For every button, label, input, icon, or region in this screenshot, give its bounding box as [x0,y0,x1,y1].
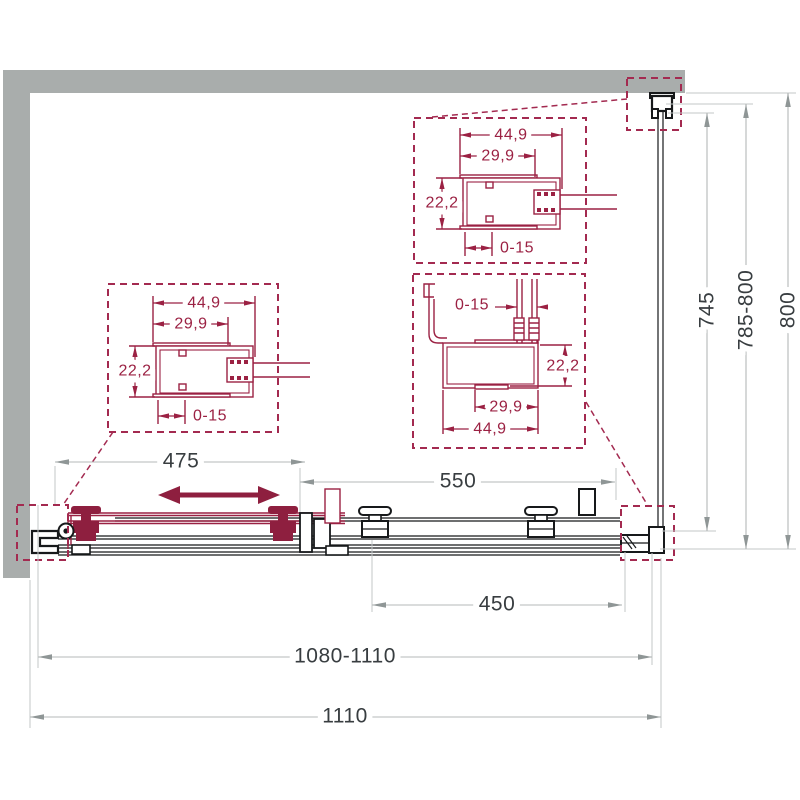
roller-black-left [359,507,391,537]
dim-inner-width: 29,9 [489,399,522,416]
technical-drawing: 44,9 29,9 22,2 0-15 [0,0,800,800]
dim-fixed-panel-label: 550 [440,470,477,493]
fixed-glass-panel-side [658,108,663,530]
roller-black-right [525,507,557,537]
wall-top [3,70,685,93]
technical-drawing-page: 44,9 29,9 22,2 0-15 [0,0,800,800]
dim-depth: 22,2 [546,358,579,375]
plan-dimensions: 475 550 450 1080-1110 1110 [30,450,661,728]
dim-outer-width: 44,9 [473,421,506,438]
dim-total-width-label: 1110 [322,705,368,728]
leader-left-detail [63,432,113,505]
fixed-panel-knob [579,489,595,515]
dim-width-range-label: 1080-1110 [294,645,396,668]
detail-bottom-wall-profile: 0-15 22,2 29,9 44,9 [424,279,580,438]
height-dimensions: 745 785-800 800 [696,93,800,549]
corner-connector [621,527,664,553]
dim-opening-label: 475 [163,450,200,473]
dim-adjustment: 0-15 [455,297,489,314]
detail-left-corner-profile [118,295,310,425]
detail-top-corner-profile [425,127,617,257]
plan-view-assembly [32,489,664,555]
dim-glass-height-label: 745 [696,292,719,329]
guide-block-left [72,545,90,554]
dim-height-range-label: 785-800 [735,270,758,351]
leader-top-detail [432,99,627,117]
dim-door-label: 450 [479,593,516,616]
panel-overlap-clamp [300,513,348,555]
top-wall-profile [650,93,674,118]
dim-total-height-label: 800 [777,292,800,329]
left-wall-profile [32,531,58,553]
wall-left [3,70,30,578]
bottom-track [58,536,655,548]
slide-direction-arrow-icon [158,486,280,504]
door-handle [325,489,340,523]
